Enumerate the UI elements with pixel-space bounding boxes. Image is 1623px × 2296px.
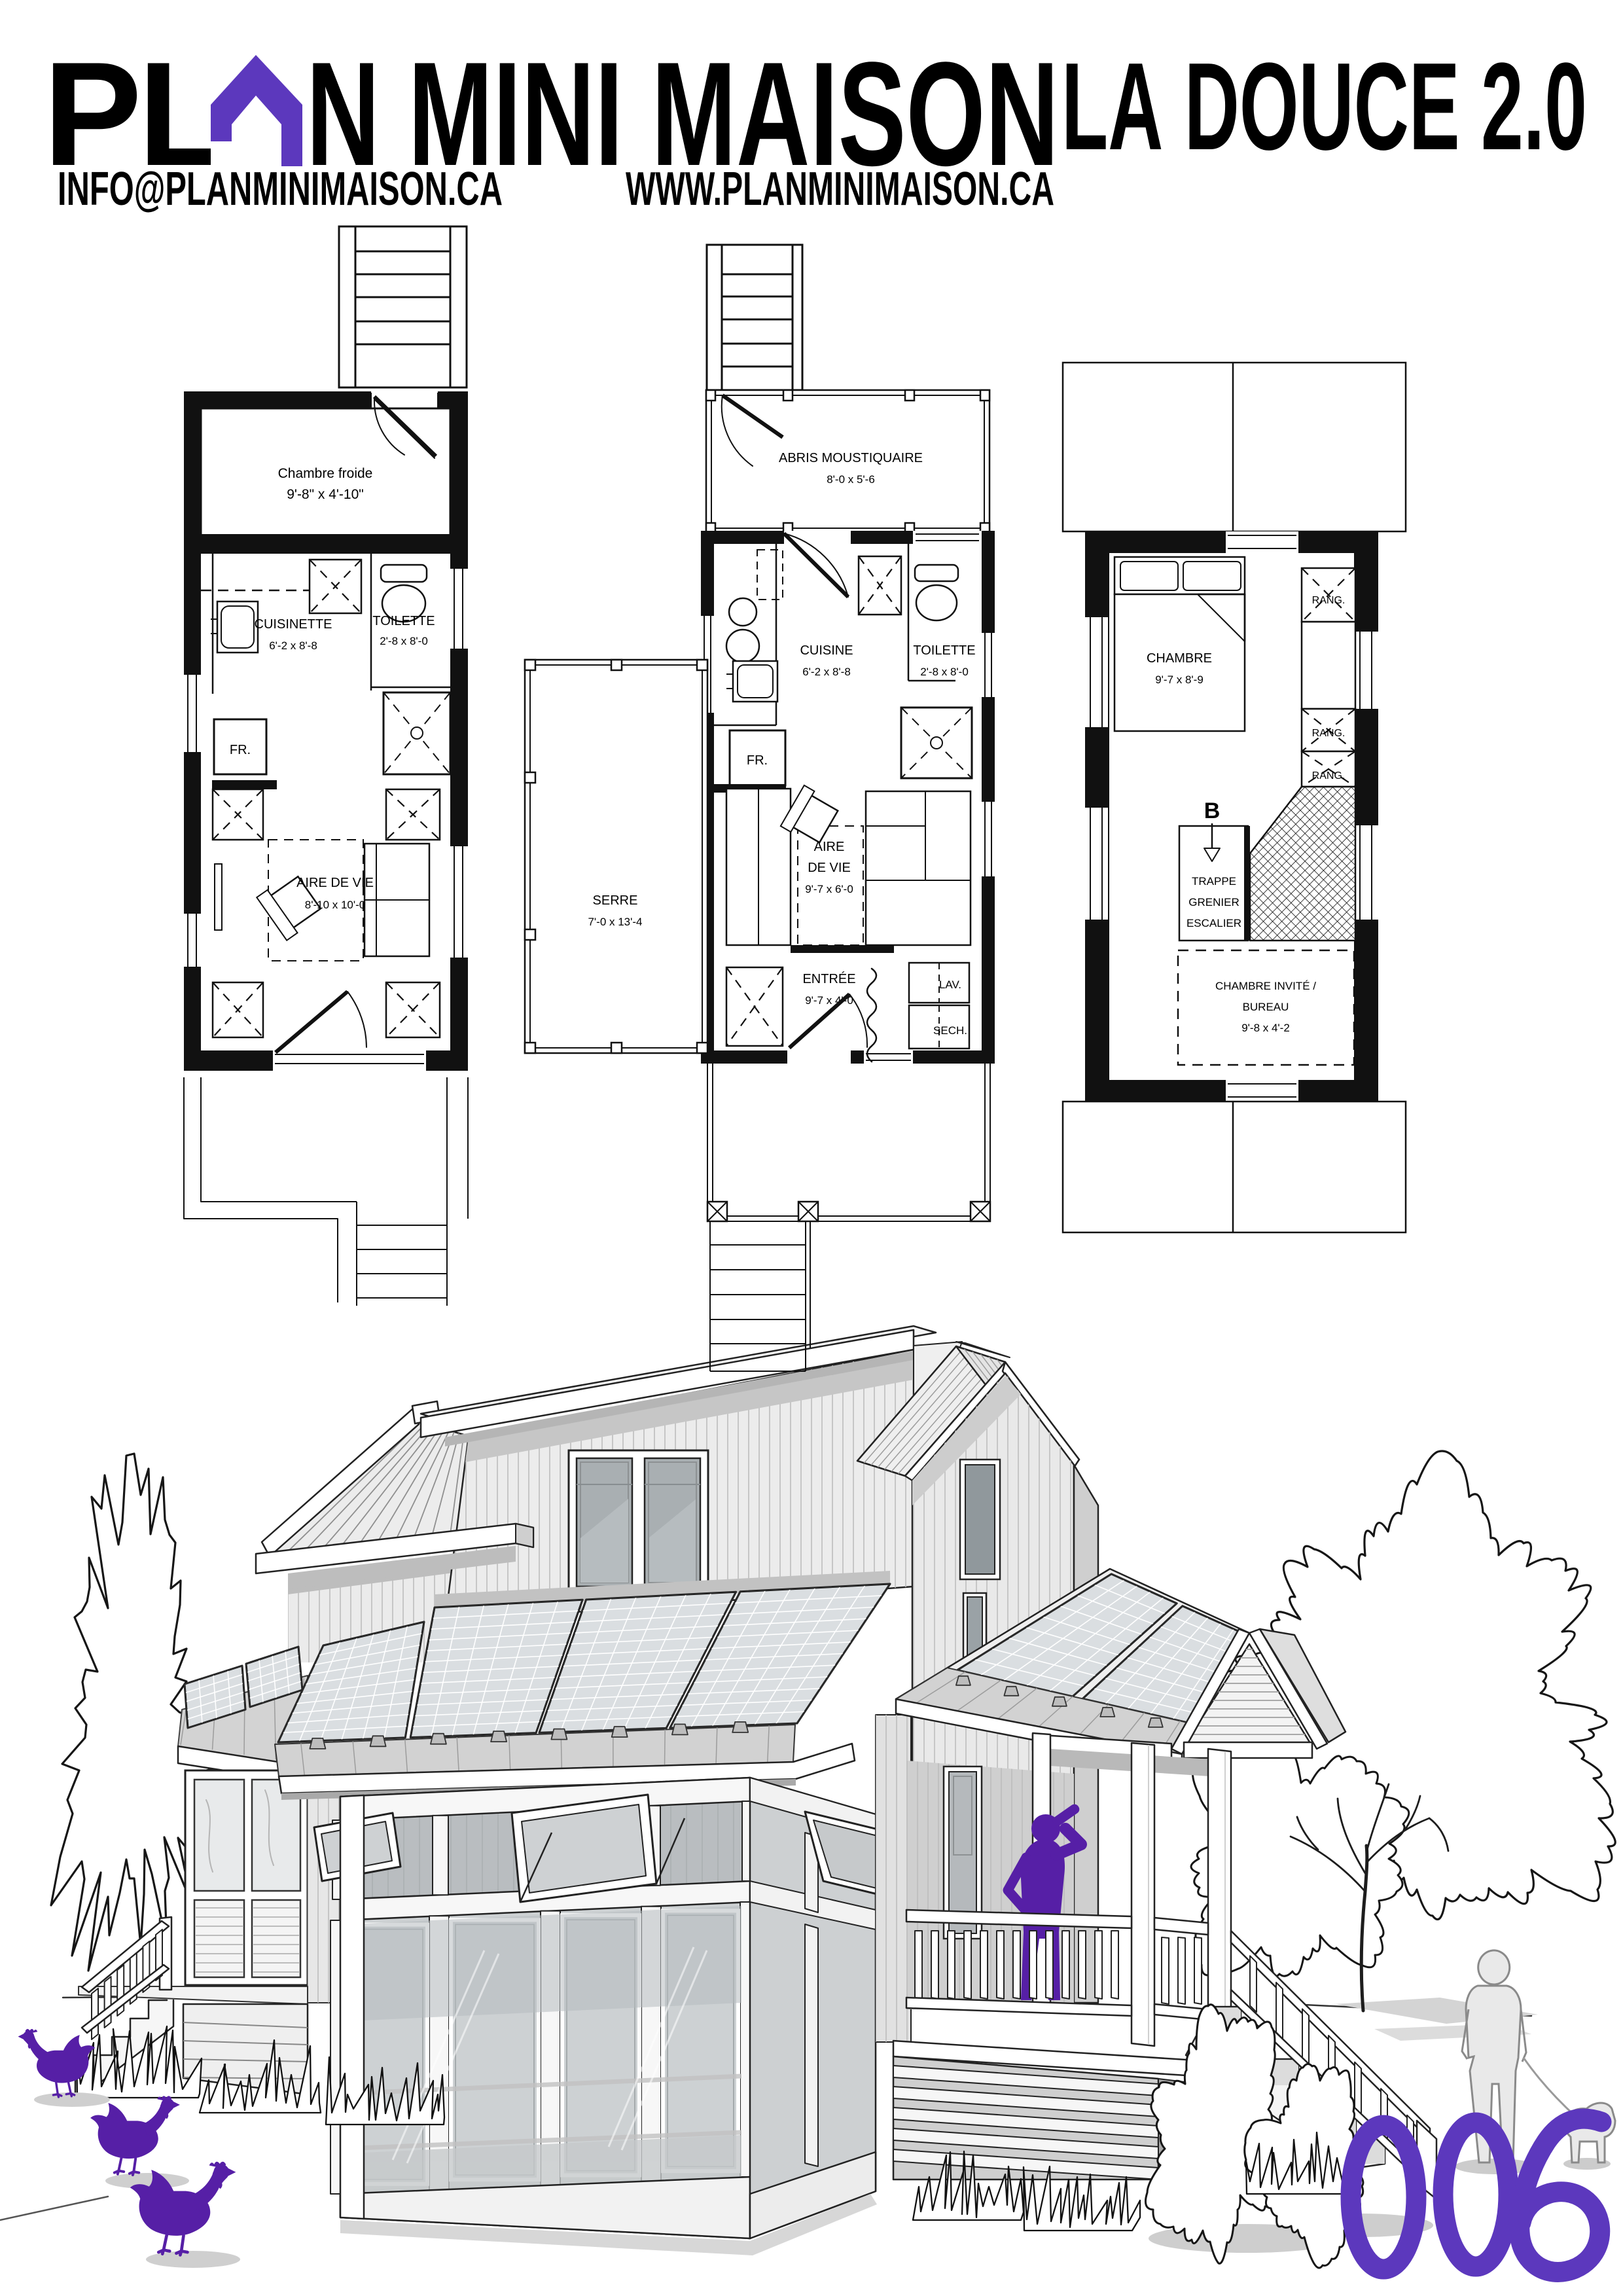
svg-text:CUISINETTE: CUISINETTE: [255, 617, 332, 632]
svg-text:CHAMBRE: CHAMBRE: [1147, 651, 1212, 666]
svg-text:TOILETTE: TOILETTE: [913, 643, 975, 658]
svg-text:7'-0 x 13'-4: 7'-0 x 13'-4: [588, 916, 642, 928]
svg-text:CUISINE: CUISINE: [800, 643, 853, 658]
svg-text:9'-8" x 4'-10": 9'-8" x 4'-10": [287, 487, 363, 502]
svg-text:TOILETTE: TOILETTE: [372, 614, 435, 628]
svg-text:CHAMBRE INVITÉ /: CHAMBRE INVITÉ /: [1215, 980, 1316, 992]
svg-text:8'-0 x 5'-6: 8'-0 x 5'-6: [827, 473, 875, 486]
svg-text:6'-2 x 8'-8: 6'-2 x 8'-8: [269, 639, 317, 652]
svg-text:ESCALIER: ESCALIER: [1186, 917, 1241, 929]
svg-text:9'-7 x 6'-0: 9'-7 x 6'-0: [805, 883, 853, 895]
svg-text:SECH.: SECH.: [933, 1024, 967, 1037]
svg-text:2'-8 x 8'-0: 2'-8 x 8'-0: [920, 666, 969, 678]
svg-text:WWW.PLANMINIMAISON.CA: WWW.PLANMINIMAISON.CA: [626, 163, 1054, 215]
svg-text:B: B: [1204, 798, 1221, 823]
svg-text:6'-2 x 8'-8: 6'-2 x 8'-8: [802, 666, 851, 678]
svg-text:AIRE: AIRE: [814, 840, 845, 854]
svg-text:BUREAU: BUREAU: [1243, 1001, 1289, 1013]
svg-text:AIRE DE VIE: AIRE DE VIE: [296, 876, 374, 890]
svg-text:GRENIER: GRENIER: [1188, 896, 1239, 908]
svg-text:SERRE: SERRE: [593, 893, 638, 908]
svg-text:RANG.: RANG.: [1312, 595, 1346, 606]
svg-text:ENTRÉE: ENTRÉE: [802, 971, 855, 986]
svg-text:INFO@PLANMINIMAISON.CA: INFO@PLANMINIMAISON.CA: [58, 163, 503, 215]
svg-text:9'-8 x 4'-2: 9'-8 x 4'-2: [1241, 1022, 1290, 1034]
svg-text:LA DOUCE 2.0: LA DOUCE 2.0: [1061, 37, 1587, 176]
svg-text:RANG.: RANG.: [1312, 770, 1346, 781]
svg-text:DE VIE: DE VIE: [808, 861, 851, 875]
svg-text:RANG.: RANG.: [1312, 728, 1346, 739]
svg-text:FR.: FR.: [230, 743, 251, 757]
svg-text:ABRIS MOUSTIQUAIRE: ABRIS MOUSTIQUAIRE: [779, 451, 923, 465]
svg-text:TRAPPE: TRAPPE: [1192, 875, 1236, 888]
svg-text:2'-8 x 8'-0: 2'-8 x 8'-0: [380, 635, 428, 647]
svg-text:9'-7 x 8'-9: 9'-7 x 8'-9: [1155, 673, 1204, 686]
svg-text:LAV.: LAV.: [939, 978, 961, 991]
svg-text:FR.: FR.: [747, 753, 768, 768]
svg-text:8'-10 x 10'-0: 8'-10 x 10'-0: [305, 899, 366, 911]
svg-text:Chambre froide: Chambre froide: [278, 466, 373, 481]
